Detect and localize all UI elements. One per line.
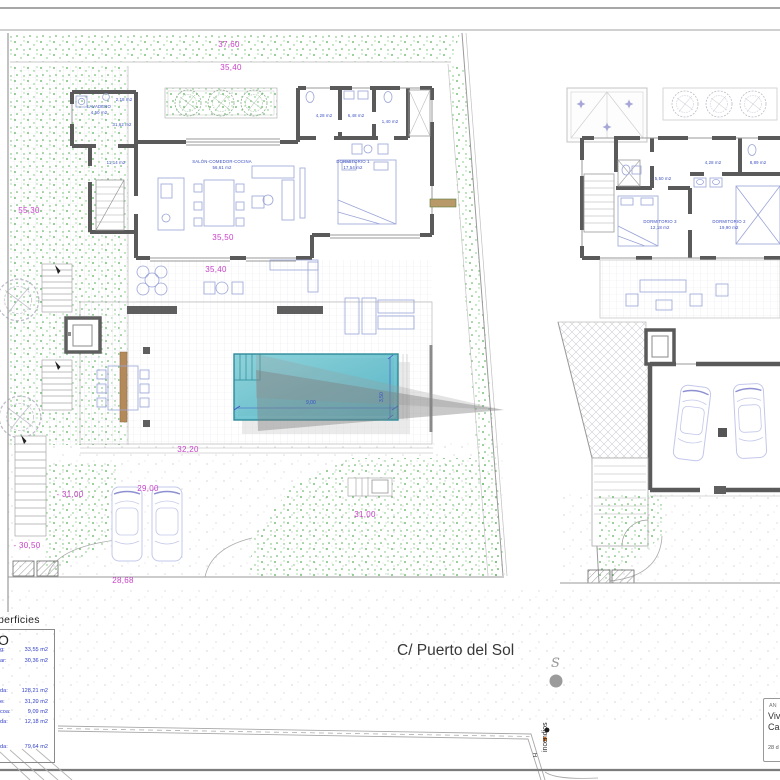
site-plan-drawing xyxy=(0,0,780,780)
room-lavadero-name: LAVADERO xyxy=(87,104,111,110)
pool-length-dim: 9,00 xyxy=(306,400,316,406)
title-block-line1: AN xyxy=(769,703,777,709)
surfaces-row: e: 31,20 m2 xyxy=(0,699,48,705)
surfaces-row-label: da: xyxy=(0,688,8,694)
room-dormitorio3-name: DORMITORIO 3 xyxy=(643,219,676,225)
surfaces-row-value: 79,64 m2 xyxy=(25,744,48,750)
surfaces-row-value: 31,20 m2 xyxy=(25,699,48,705)
room-dormitorio3: DORMITORIO 3 12,18 m2 xyxy=(643,219,676,231)
sewer-letter: S xyxy=(551,656,560,671)
surfaces-row: da: 128,21 m2 xyxy=(0,688,48,694)
room-lavadero-area: 4,50 m2 xyxy=(87,110,111,116)
room-bano-e-area: 4,28 m2 xyxy=(705,160,722,166)
room-dormitorio1-name: DORMITORIO 1 xyxy=(336,159,369,165)
dim-site-left: 55,30 xyxy=(18,206,40,215)
surfaces-row: g: 33,55 m2 xyxy=(0,647,48,653)
surfaces-row-value: 9,09 m2 xyxy=(28,709,48,715)
room-lavadero: LAVADERO 4,50 m2 xyxy=(87,104,111,116)
room-hall-upper-area: 31,62 m2 xyxy=(112,122,131,128)
dim-terrace: 35,40 xyxy=(205,265,227,274)
surfaces-row-value: 33,55 m2 xyxy=(25,647,48,653)
surfaces-row-label: coa: xyxy=(0,709,11,715)
surfaces-row-label: e: xyxy=(0,699,5,705)
street-top xyxy=(0,8,780,30)
room-salon: SALÓN-COMEDOR-COCINA 56,61 m2 xyxy=(192,159,252,171)
title-block-line2: Viv xyxy=(768,711,780,721)
title-block-line4: 28 d xyxy=(768,745,779,751)
dim-frontage: 28,68 xyxy=(112,576,134,585)
surfaces-row-label: ar: xyxy=(0,658,7,664)
garden-steps xyxy=(348,478,392,496)
title-block: AN Viv Ca 28 d xyxy=(763,698,780,762)
room-dormitorio2-area: 19,90 m2 xyxy=(712,225,745,231)
level-marker-b: - 30,50 xyxy=(13,541,40,550)
surfaces-row-label: g: xyxy=(0,647,5,653)
pool-width-dim: 3,50 xyxy=(379,392,385,402)
room-bano-a-area: 4,28 m2 xyxy=(316,113,333,119)
surfaces-header-fragment: perficies xyxy=(0,614,40,626)
dim-garden-level: 31,00 xyxy=(354,510,376,519)
dim-site-width: 37,60 xyxy=(218,40,240,49)
room-bano-d-area: 5,50 m2 xyxy=(655,176,672,182)
room-dormitorio1-area: 17,54 m2 xyxy=(336,165,369,171)
room-dormitorio3-area: 12,18 m2 xyxy=(643,225,676,231)
surfaces-row-value: 30,36 m2 xyxy=(25,658,48,664)
surfaces-row-value: 12,18 m2 xyxy=(25,719,48,725)
hydrant-label: incendios xyxy=(542,722,549,752)
floor-plan-sheet: 37,60 35,40 55,30 35,50 35,40 32,20 - 31… xyxy=(0,0,780,780)
dim-house-bottom: 35,50 xyxy=(212,233,234,242)
elevator-ground xyxy=(66,318,100,352)
title-block-line3: Ca xyxy=(768,722,780,732)
room-bano-f-area: 8,89 m2 xyxy=(750,160,767,166)
surfaces-row: ar: 30,36 m2 xyxy=(0,658,48,664)
room-aseo-area: 2,18 m2 xyxy=(116,97,133,103)
surfaces-row: da: 79,64 m2 xyxy=(0,744,48,750)
surfaces-row-value: 128,21 m2 xyxy=(22,688,48,694)
room-hall-area: 11,14 m2 xyxy=(107,160,126,166)
surfaces-row-label: da: xyxy=(0,719,8,725)
hydrant-letter: H xyxy=(533,753,539,757)
room-bano-b-area: 6,48 m2 xyxy=(348,113,365,119)
room-salon-area: 56,61 m2 xyxy=(192,165,252,171)
road-centerline xyxy=(58,726,598,780)
room-dormitorio1: DORMITORIO 1 17,54 m2 xyxy=(336,159,369,171)
surfaces-row: coa: 9,09 m2 xyxy=(0,709,48,715)
room-bano-c-area: 1,40 m2 xyxy=(382,119,399,125)
dim-house-top: 35,40 xyxy=(220,63,242,72)
dim-driveway: 29,00 xyxy=(137,484,159,493)
surfaces-row-label: da: xyxy=(0,744,8,750)
room-salon-name: SALÓN-COMEDOR-COCINA xyxy=(192,159,252,165)
surfaces-row: da: 12,18 m2 xyxy=(0,719,48,725)
room-dormitorio2-name: DORMITORIO 2 xyxy=(712,219,745,225)
level-marker-a: - 31,00 xyxy=(56,490,83,499)
street-name-label: C/ Puerto del Sol xyxy=(397,642,514,660)
sewer-manhole-icon xyxy=(550,675,563,688)
room-dormitorio2: DORMITORIO 2 19,90 m2 xyxy=(712,219,745,231)
dim-deck: 32,20 xyxy=(177,445,199,454)
